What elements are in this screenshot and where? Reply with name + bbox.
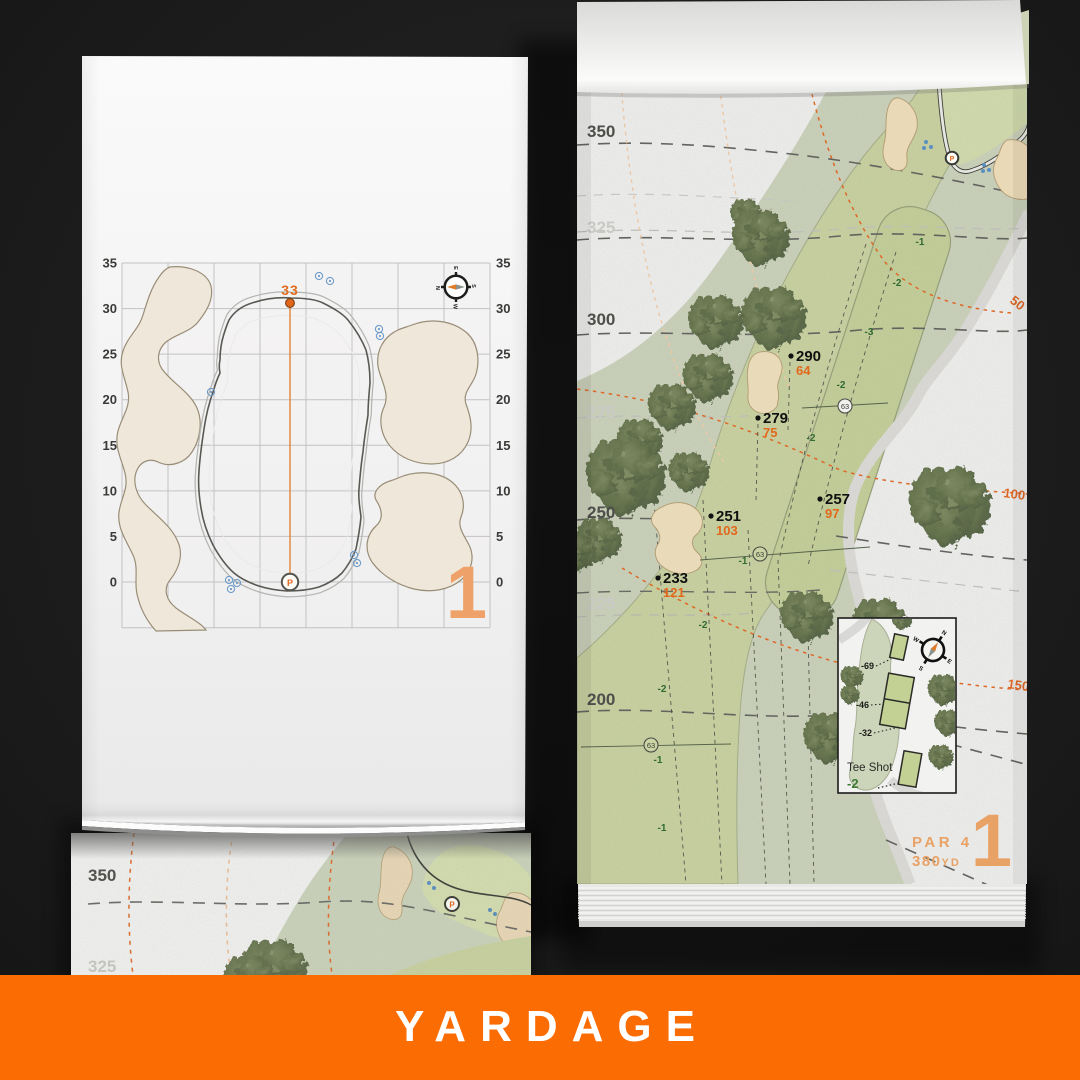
svg-text:20: 20 — [103, 392, 117, 407]
svg-text:30: 30 — [496, 301, 510, 316]
svg-text:N: N — [434, 286, 440, 290]
svg-text:35: 35 — [103, 256, 117, 271]
svg-text:300: 300 — [587, 310, 615, 329]
svg-text:64: 64 — [796, 363, 811, 378]
svg-text:10: 10 — [103, 483, 117, 498]
svg-text:-2: -2 — [807, 433, 816, 444]
svg-text:25: 25 — [103, 347, 117, 362]
svg-text:PAR 4: PAR 4 — [912, 834, 973, 851]
svg-text:-2: -2 — [847, 776, 859, 791]
svg-text:-2: -2 — [837, 380, 846, 391]
svg-text:-46: -46 — [856, 700, 869, 710]
svg-text:E: E — [452, 266, 458, 270]
svg-text:YARDAGE: YARDAGE — [395, 1002, 709, 1051]
svg-text:350: 350 — [587, 122, 615, 141]
svg-text:1: 1 — [971, 799, 1012, 882]
svg-text:5: 5 — [110, 529, 117, 544]
svg-text:63: 63 — [841, 402, 849, 411]
svg-text:63: 63 — [647, 741, 655, 750]
svg-text:0: 0 — [496, 575, 503, 590]
svg-text:-1: -1 — [654, 755, 663, 766]
svg-text:Tee Shot: Tee Shot — [847, 762, 893, 774]
svg-text:-2: -2 — [658, 684, 667, 695]
svg-text:63: 63 — [756, 550, 764, 559]
svg-text:-32: -32 — [859, 728, 872, 738]
svg-text:250: 250 — [587, 503, 615, 522]
svg-text:75: 75 — [763, 425, 777, 440]
svg-text:-2: -2 — [699, 620, 708, 631]
svg-text:1: 1 — [446, 551, 487, 634]
svg-text:P: P — [287, 578, 293, 588]
svg-text:-1: -1 — [658, 823, 667, 834]
svg-text:-2: -2 — [893, 278, 902, 289]
svg-text:-3: -3 — [865, 327, 874, 338]
svg-text:25: 25 — [496, 347, 510, 362]
svg-text:W: W — [452, 304, 458, 310]
svg-text:103: 103 — [716, 523, 738, 538]
svg-text:225: 225 — [587, 594, 615, 613]
svg-text:20: 20 — [496, 392, 510, 407]
svg-text:30: 30 — [103, 301, 117, 316]
svg-text:200: 200 — [587, 690, 615, 709]
svg-text:-1: -1 — [916, 237, 925, 248]
svg-text:33: 33 — [281, 282, 299, 298]
svg-text:325: 325 — [587, 218, 615, 237]
svg-text:P: P — [950, 156, 955, 163]
svg-text:15: 15 — [103, 438, 117, 453]
svg-text:121: 121 — [663, 585, 685, 600]
svg-text:-1: -1 — [739, 556, 748, 567]
svg-text:S: S — [470, 284, 476, 288]
svg-text:5: 5 — [496, 529, 503, 544]
svg-text:275: 275 — [587, 403, 615, 422]
svg-text:97: 97 — [825, 506, 839, 521]
svg-text:-69: -69 — [861, 661, 874, 671]
svg-text:0: 0 — [110, 575, 117, 590]
svg-text:15: 15 — [496, 438, 510, 453]
svg-text:10: 10 — [496, 483, 510, 498]
svg-text:35: 35 — [496, 256, 510, 271]
